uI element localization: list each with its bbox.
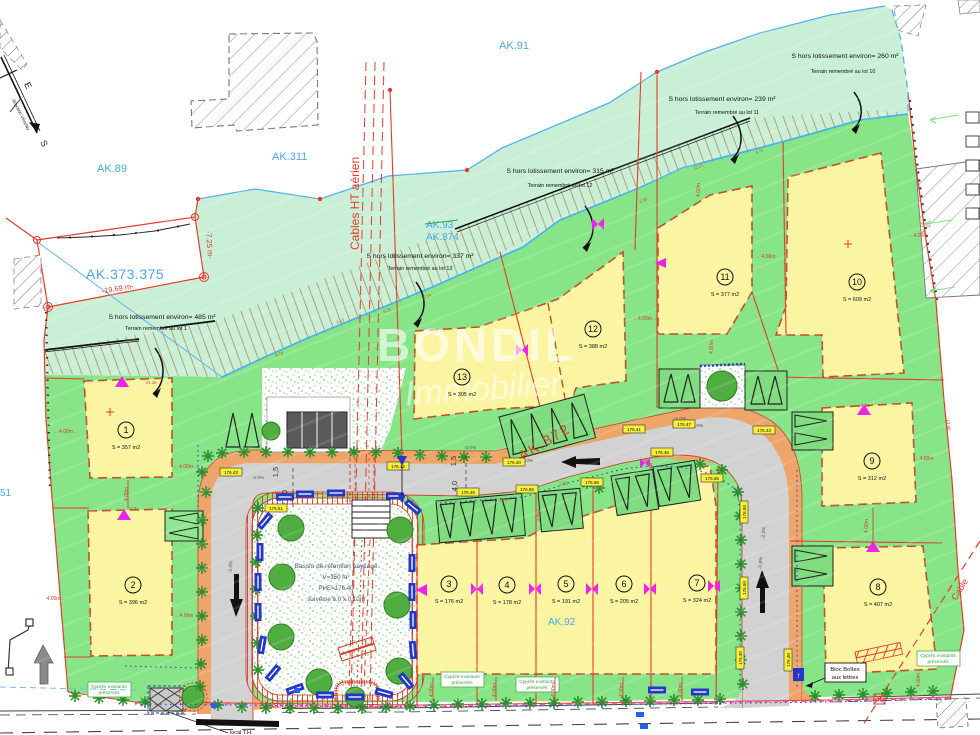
svg-text:13.85: 13.85 bbox=[946, 419, 952, 431]
svg-text:-2.0%: -2.0% bbox=[227, 560, 234, 574]
svg-text:←4.00m→: ←4.00m→ bbox=[54, 429, 78, 435]
svg-text:S hors lotissement environ= 33: S hors lotissement environ= 337 m² bbox=[366, 253, 474, 260]
svg-text:-0.8%: -0.8% bbox=[757, 556, 764, 570]
svg-text:176.41: 176.41 bbox=[627, 427, 641, 432]
svg-text:176.50: 176.50 bbox=[742, 505, 747, 519]
svg-text:11: 11 bbox=[720, 272, 729, 282]
svg-text:10: 10 bbox=[852, 277, 862, 287]
svg-text:S = 357 m2: S = 357 m2 bbox=[112, 445, 140, 451]
svg-text:4.00m: 4.00m bbox=[124, 487, 130, 501]
svg-text:51: 51 bbox=[0, 488, 12, 499]
svg-text:S = 305 m2: S = 305 m2 bbox=[448, 392, 476, 398]
svg-text:AK.93: AK.93 bbox=[426, 220, 454, 231]
svg-text:S = 191 m2: S = 191 m2 bbox=[552, 599, 580, 605]
svg-text:préservés: préservés bbox=[98, 690, 120, 696]
svg-text:←4.00m: ←4.00m bbox=[915, 456, 934, 462]
svg-text:AK.92: AK.92 bbox=[548, 617, 576, 628]
svg-text:176.51: 176.51 bbox=[269, 506, 283, 511]
svg-text:176.46: 176.46 bbox=[461, 490, 475, 495]
svg-text:4.00m: 4.00m bbox=[536, 508, 541, 521]
svg-text:AK.373.375: AK.373.375 bbox=[86, 266, 164, 282]
svg-text:13: 13 bbox=[457, 372, 467, 382]
svg-text:←4.00m→: ←4.00m→ bbox=[174, 464, 198, 470]
svg-text:18.29: 18.29 bbox=[858, 403, 870, 408]
svg-text:5: 5 bbox=[563, 579, 568, 589]
svg-text:←4.00m: ←4.00m bbox=[909, 233, 928, 239]
svg-text:S hors lotissement environ= 48: S hors lotissement environ= 485 m² bbox=[108, 314, 216, 321]
svg-text:4.00m: 4.00m bbox=[429, 683, 435, 697]
svg-text:2: 2 bbox=[130, 580, 135, 590]
svg-text:S = 205 m2: S = 205 m2 bbox=[610, 599, 638, 605]
svg-text:S = 609 m2: S = 609 m2 bbox=[843, 297, 871, 303]
svg-text:S = 178 m2: S = 178 m2 bbox=[493, 600, 521, 606]
svg-text:9: 9 bbox=[869, 456, 874, 466]
svg-text:S hors lotissement environ= 31: S hors lotissement environ= 315 m² bbox=[506, 168, 614, 175]
svg-text:V=350 m³: V=350 m³ bbox=[323, 574, 350, 581]
svg-text:13.91: 13.91 bbox=[128, 506, 139, 511]
svg-text:Bassin de rétention paysagé: Bassin de rétention paysagé bbox=[294, 563, 378, 570]
svg-text:←4.00m: ←4.00m bbox=[175, 613, 194, 619]
svg-text:176.65: 176.65 bbox=[520, 487, 534, 492]
svg-text:préservés: préservés bbox=[927, 659, 949, 665]
svg-text:4.00m: 4.00m bbox=[551, 683, 557, 697]
svg-text:176.46: 176.46 bbox=[655, 450, 669, 455]
svg-text:6: 6 bbox=[621, 579, 626, 589]
svg-text:176.47: 176.47 bbox=[677, 422, 691, 427]
svg-text:12: 12 bbox=[588, 324, 598, 334]
svg-text:176.43: 176.43 bbox=[757, 428, 771, 433]
svg-text:Terrain remembré au lot 13: Terrain remembré au lot 13 bbox=[388, 266, 453, 272]
svg-text:Cyprès existants: Cyprès existants bbox=[91, 684, 127, 690]
svg-text:S = 312 m2: S = 312 m2 bbox=[858, 476, 886, 482]
svg-text:S = 377 m2: S = 377 m2 bbox=[711, 292, 739, 298]
svg-text:176.65: 176.65 bbox=[705, 476, 719, 481]
svg-text:176.40: 176.40 bbox=[786, 653, 791, 667]
svg-text:AK.91: AK.91 bbox=[499, 40, 529, 52]
svg-text:-2.0%: -2.0% bbox=[760, 526, 767, 540]
svg-text:4.00m: 4.00m bbox=[619, 683, 625, 697]
svg-text:3: 3 bbox=[446, 579, 451, 589]
svg-text:8: 8 bbox=[875, 582, 880, 592]
svg-text:AK.374: AK.374 bbox=[426, 232, 459, 243]
svg-text:S hors lotissement environ= 23: S hors lotissement environ= 239 m² bbox=[668, 96, 776, 103]
svg-text:BONDIL: BONDIL bbox=[377, 319, 577, 371]
svg-text:4.00m: 4.00m bbox=[678, 683, 684, 697]
svg-text:4.00m→: 4.00m→ bbox=[47, 596, 66, 602]
svg-text:-2.0%: -2.0% bbox=[464, 445, 477, 451]
svg-text:PHE=176.40: PHE=176.40 bbox=[318, 585, 354, 592]
svg-text:Terrain remembré au lot 1: Terrain remembré au lot 1 bbox=[125, 326, 187, 332]
svg-text:surverse 6,0 x 0,10m: surverse 6,0 x 0,10m bbox=[307, 596, 365, 603]
svg-text:7: 7 bbox=[694, 578, 699, 588]
svg-text:Cyprès existants: Cyprès existants bbox=[920, 653, 956, 659]
svg-text:Cyprès existants: Cyprès existants bbox=[444, 674, 480, 680]
svg-text:176.66: 176.66 bbox=[585, 480, 599, 485]
svg-text:4.00m: 4.00m bbox=[696, 183, 702, 197]
svg-text:4.00m: 4.00m bbox=[709, 340, 715, 354]
svg-text:176.50: 176.50 bbox=[742, 581, 747, 595]
svg-text:local T.H.: local T.H. bbox=[230, 730, 253, 735]
svg-text:176.43: 176.43 bbox=[224, 470, 238, 475]
svg-text:176.12: 176.12 bbox=[391, 464, 405, 469]
svg-text:Cyprès existants: Cyprès existants bbox=[519, 679, 555, 685]
svg-text:176.30: 176.30 bbox=[738, 651, 743, 665]
svg-text:AK.311: AK.311 bbox=[272, 151, 307, 163]
svg-text:←4.00m: ←4.00m bbox=[757, 254, 776, 260]
svg-text:S hors lotissement environ= 26: S hors lotissement environ= 260 m² bbox=[791, 53, 899, 60]
svg-text:S = 407 m2: S = 407 m2 bbox=[864, 602, 892, 608]
svg-text:Terrain remembré au lot 12: Terrain remembré au lot 12 bbox=[528, 183, 593, 189]
svg-text:Bloc Boîtes: Bloc Boîtes bbox=[830, 667, 859, 673]
svg-text:-2.0%: -2.0% bbox=[252, 475, 265, 481]
svg-text:S = 176 m2: S = 176 m2 bbox=[435, 599, 463, 605]
svg-text:4: 4 bbox=[504, 580, 509, 590]
svg-text:Cables HT aérien: Cables HT aérien bbox=[348, 157, 362, 250]
svg-text:176.40: 176.40 bbox=[507, 460, 521, 465]
svg-text:←4.00m→: ←4.00m→ bbox=[633, 316, 657, 322]
svg-text:1: 1 bbox=[123, 425, 128, 435]
svg-text:S = 388 m2: S = 388 m2 bbox=[579, 344, 607, 350]
svg-text:4.00m: 4.00m bbox=[492, 683, 498, 697]
svg-text:préservés: préservés bbox=[526, 685, 548, 691]
svg-text:aux lettres: aux lettres bbox=[832, 675, 859, 681]
svg-text:4.00m: 4.00m bbox=[916, 673, 922, 687]
svg-text:S = 324 m2: S = 324 m2 bbox=[683, 598, 711, 604]
svg-text:1,5: 1,5 bbox=[449, 456, 458, 466]
svg-text:21.25: 21.25 bbox=[146, 380, 157, 385]
svg-text:préservés: préservés bbox=[451, 680, 473, 686]
svg-text:AK.89: AK.89 bbox=[97, 163, 127, 175]
svg-text:S = 396 m2: S = 396 m2 bbox=[119, 600, 147, 606]
svg-text:↑: ↑ bbox=[797, 671, 801, 680]
svg-text:Terrain remembré au lot 11: Terrain remembré au lot 11 bbox=[695, 110, 759, 116]
svg-text:1,5: 1,5 bbox=[271, 467, 280, 477]
svg-text:Terrain remembré au lot 10: Terrain remembré au lot 10 bbox=[811, 69, 876, 75]
svg-text:4.00m: 4.00m bbox=[864, 519, 870, 533]
